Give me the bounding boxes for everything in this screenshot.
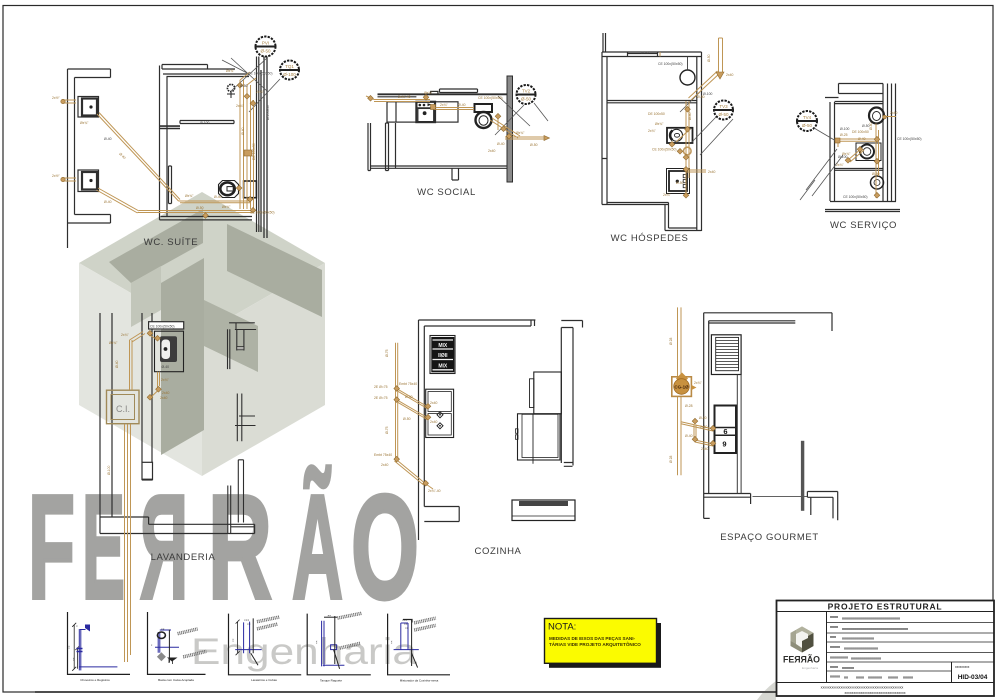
svg-text:Øx¾": Øx¾" — [109, 341, 118, 345]
svg-text:Ø-50: Ø-50 — [676, 181, 684, 185]
svg-text:Ø-50: Ø-50 — [872, 172, 880, 176]
svg-text:Ø-50: Ø-50 — [260, 49, 271, 54]
svg-text:xxxxxxx: xxxxxxx — [868, 676, 882, 680]
svg-text:×: × — [76, 624, 78, 628]
svg-text:Ø-50: Ø-50 — [196, 206, 204, 210]
svg-text:Ø-100: Ø-100 — [200, 121, 210, 125]
svg-text:PVI: PVI — [262, 41, 269, 46]
svg-text:xxxxx: xxxxx — [903, 676, 913, 680]
svg-text:TV3: TV3 — [719, 104, 728, 109]
svg-text:Ø-50: Ø-50 — [240, 84, 248, 88]
svg-text:O: O — [351, 465, 419, 630]
svg-text:Ø-40: Ø-40 — [458, 103, 466, 107]
svg-text:IIØII: IIØII — [438, 353, 448, 359]
svg-text:2x¾"-40: 2x¾"-40 — [428, 489, 441, 493]
svg-text:Я: Я — [140, 465, 188, 630]
svg-text:2x40: 2x40 — [890, 111, 897, 115]
svg-text:CE 100x(50x50): CE 100x(50x50) — [897, 137, 922, 141]
svg-text:××: ×× — [328, 614, 332, 618]
svg-text:2x40: 2x40 — [430, 401, 437, 405]
svg-text:C.I.: C.I. — [116, 404, 130, 414]
svg-text:××: ×× — [72, 657, 76, 661]
svg-text:xxxxxxxxxxxxxxxxxxxxxxxxxxxxx: xxxxxxxxxxxxxxxxxxxxxxxxxxxxx — [842, 617, 900, 621]
svg-text:Ø-50: Ø-50 — [707, 54, 711, 62]
svg-text:Ø-100: Ø-100 — [840, 127, 850, 131]
svg-text:Ø-50: Ø-50 — [718, 112, 729, 117]
svg-text:Ø-50: Ø-50 — [521, 97, 532, 102]
svg-text:Ø-100x50: Ø-100x50 — [266, 105, 270, 120]
svg-text:Engenharia: Engenharia — [802, 666, 818, 670]
svg-text:xxxxxxxxxxxxxxxxxxxxxxxxxxxxxx: xxxxxxxxxxxxxxxxxxxxxxxxxxxxxxxxxx — [844, 691, 905, 695]
svg-text:DE 100x50: DE 100x50 — [852, 130, 869, 134]
svg-text:Ã: Ã — [292, 465, 343, 630]
svg-text:Ø-25: Ø-25 — [840, 133, 848, 137]
svg-text:PROJETO ESTRUTURAL: PROJETO ESTRUTURAL — [828, 602, 943, 612]
svg-text:DE 100x50: DE 100x50 — [252, 143, 256, 160]
svg-text:Ø-50: Ø-50 — [862, 124, 870, 128]
svg-text:xxxxx: xxxxx — [830, 645, 840, 649]
svg-text:Øx¾": Øx¾" — [222, 205, 231, 209]
svg-text:Chuveiros e Registros: Chuveiros e Registros — [80, 678, 110, 682]
svg-text:CG-1Ø: CG-1Ø — [674, 385, 689, 390]
svg-text:TV2: TV2 — [522, 89, 531, 94]
svg-text:LAVANDERIA: LAVANDERIA — [151, 552, 216, 563]
svg-text:xxxxxxxxxxxxxxxxxxxxxxxxxxxxxx: xxxxxxxxxxxxxxxxxxxxxxxxxxxxxxxxx — [842, 627, 908, 631]
svg-text:2x¾": 2x¾" — [236, 104, 244, 108]
svg-text:Ø-50: Ø-50 — [802, 123, 813, 128]
svg-text:Ø-100: Ø-100 — [703, 92, 713, 96]
svg-text:2x¾": 2x¾" — [663, 193, 671, 197]
svg-text:E: E — [82, 465, 125, 630]
svg-text:Engenharia: Engenharia — [191, 631, 418, 672]
svg-text:Ø-75: Ø-75 — [385, 426, 389, 434]
svg-text:Øx¾": Øx¾" — [226, 69, 235, 73]
svg-text:Ø-40: Ø-40 — [104, 200, 112, 204]
svg-text:Ø-40: Ø-40 — [162, 365, 170, 369]
svg-text:DE 100x50: DE 100x50 — [648, 112, 665, 116]
svg-text:Ø-40: Ø-40 — [858, 137, 866, 141]
svg-text:Ø-40: Ø-40 — [699, 416, 707, 420]
svg-text:Ø-40: Ø-40 — [104, 137, 112, 141]
svg-text:××: ×× — [67, 645, 71, 649]
svg-text:Ø-40: Ø-40 — [688, 112, 692, 120]
svg-text:Ø-40: Ø-40 — [641, 51, 649, 55]
svg-text:xxxx: xxxx — [856, 676, 864, 680]
svg-text:NOTA:: NOTA: — [548, 622, 576, 633]
svg-text:Ø 28: Ø 28 — [669, 338, 673, 345]
svg-text:2x40: 2x40 — [381, 463, 388, 467]
svg-text:Ø-28: Ø-28 — [685, 404, 693, 408]
svg-text:2x40: 2x40 — [488, 149, 495, 153]
svg-text:CE 100x(50x50): CE 100x(50x50) — [658, 62, 683, 66]
svg-text:Øx¾": Øx¾" — [516, 131, 525, 135]
svg-text:ESPAÇO GOURMET: ESPAÇO GOURMET — [720, 532, 818, 543]
svg-text:2x¾": 2x¾" — [836, 163, 844, 167]
svg-text:CE 100x(50x50): CE 100x(50x50) — [248, 72, 273, 76]
svg-text:R: R — [208, 465, 272, 630]
svg-text:Embt 75x40: Embt 75x40 — [374, 453, 392, 457]
svg-text:Ø-50: Ø-50 — [405, 395, 413, 399]
svg-text:2x¾": 2x¾" — [694, 381, 702, 385]
svg-text:Ø-40: Ø-40 — [241, 127, 245, 135]
svg-text:xx: xx — [844, 676, 848, 680]
svg-text:FEЯЯÃO: FEЯЯÃO — [783, 655, 820, 665]
svg-text:Ø-75: Ø-75 — [385, 349, 389, 357]
svg-text:×: × — [150, 644, 154, 646]
svg-text:xxxx: xxxx — [830, 625, 838, 629]
svg-text:××: ×× — [315, 640, 319, 644]
svg-text:2E Ø=75: 2E Ø=75 — [374, 396, 388, 400]
svg-text:WC SERVIÇO: WC SERVIÇO — [830, 220, 897, 231]
svg-text:WC SOCIAL: WC SOCIAL — [417, 187, 476, 198]
svg-text:xxxxxxxxxxxxxxx: xxxxxxxxxxxxxxx — [851, 657, 881, 661]
svg-text:Bacia com Caixa Acoplada: Bacia com Caixa Acoplada — [158, 678, 194, 682]
svg-text:Ø-100: Ø-100 — [838, 155, 848, 159]
svg-text:Øx¾": Øx¾" — [655, 122, 664, 126]
svg-text:Øx¾": Øx¾" — [80, 121, 89, 125]
svg-text:xxxxxx: xxxxxx — [842, 666, 854, 670]
svg-text:××: ×× — [247, 622, 251, 626]
svg-text:××: ×× — [161, 627, 165, 631]
svg-text:2x40: 2x40 — [726, 73, 733, 77]
svg-text:Ø-40: Ø-40 — [497, 142, 505, 146]
svg-text:9: 9 — [722, 440, 726, 449]
svg-text:xxxxxxxxx: xxxxxxxxx — [955, 665, 970, 669]
svg-text:xxxxxxxxx: xxxxxxxxx — [830, 656, 848, 660]
svg-text:Ø-100: Ø-100 — [107, 465, 111, 475]
svg-text:Ø-40: Ø-40 — [869, 122, 873, 130]
svg-text:CE 100x(50x50): CE 100x(50x50) — [478, 96, 503, 100]
svg-text:××: ×× — [231, 638, 235, 642]
svg-text:2x¾"-40: 2x¾"-40 — [398, 95, 411, 99]
svg-text:xxx: xxx — [830, 635, 836, 639]
svg-text:Ø 28: Ø 28 — [669, 456, 673, 463]
svg-text:xxxx: xxxx — [830, 615, 838, 619]
svg-text:2x¾": 2x¾" — [121, 333, 129, 337]
svg-text:CE 100x(50x50): CE 100x(50x50) — [652, 148, 677, 152]
svg-text:HID-03/04: HID-03/04 — [958, 674, 988, 681]
svg-text:2x40: 2x40 — [700, 425, 707, 429]
svg-text:2x40: 2x40 — [708, 170, 715, 174]
svg-text:2x¾": 2x¾" — [161, 378, 169, 382]
svg-text:Øx¾": Øx¾" — [185, 194, 194, 198]
svg-text:2x¾": 2x¾" — [648, 129, 656, 133]
svg-text:xxxxxxxxxxxxxxxxxxxxxxxxxxxxxx: xxxxxxxxxxxxxxxxxxxxxxxxxxxxxxxxxxxxxxxx… — [821, 686, 904, 690]
svg-text:Øx¾": Øx¾" — [424, 91, 433, 95]
svg-text:2x¾": 2x¾" — [256, 90, 264, 94]
svg-text:Ø-40: Ø-40 — [685, 434, 693, 438]
svg-text:xxxxx: xxxxx — [888, 676, 898, 680]
svg-text:2x40: 2x40 — [160, 396, 167, 400]
svg-text:Tanque Raquete: Tanque Raquete — [320, 679, 342, 683]
svg-text:F: F — [28, 465, 75, 630]
svg-text:2x40: 2x40 — [162, 391, 169, 395]
svg-text:xxxxxxxxxxxxxxxx: xxxxxxxxxxxxxxxx — [842, 637, 874, 641]
svg-text:Ø-40: Ø-40 — [214, 195, 222, 199]
svg-text:Embt 75x40: Embt 75x40 — [399, 382, 417, 386]
svg-text:CE 100x(50x50): CE 100x(50x50) — [150, 325, 175, 329]
svg-text:Lavatórios e Cubas: Lavatórios e Cubas — [251, 678, 277, 682]
svg-text:TQ1: TQ1 — [285, 64, 294, 69]
svg-text:xxxxxxxxxxxxxxxxx: xxxxxxxxxxxxxxxxx — [844, 647, 878, 651]
svg-text:Ø-100: Ø-100 — [283, 72, 296, 77]
svg-text:Ø-50: Ø-50 — [403, 417, 411, 421]
svg-text:CE 100x(50x50): CE 100x(50x50) — [843, 195, 868, 199]
svg-text:2E Ø=75: 2E Ø=75 — [374, 385, 388, 389]
svg-text:TÁRIAS VIDE PROJETO ARQUITETÔN: TÁRIAS VIDE PROJETO ARQUITETÔNICO — [549, 640, 641, 647]
svg-text:MEDIDAS DE EIXOS DAS PEÇAS SAN: MEDIDAS DE EIXOS DAS PEÇAS SANI- — [549, 636, 635, 641]
svg-text:WC HÓSPEDES: WC HÓSPEDES — [611, 233, 689, 244]
svg-text:××: ×× — [390, 640, 394, 644]
svg-text:MIX: MIX — [438, 363, 448, 369]
svg-text:2x40: 2x40 — [430, 420, 437, 424]
svg-text:xxxx: xxxx — [830, 665, 838, 669]
svg-text:2x½": 2x½" — [52, 96, 60, 100]
svg-text:MIX: MIX — [438, 343, 448, 349]
svg-text:Misturador da Cozinha-mesa: Misturador da Cozinha-mesa — [400, 679, 439, 683]
svg-text:6: 6 — [723, 427, 727, 436]
svg-text:Ø-50: Ø-50 — [530, 143, 538, 147]
svg-text:xxxxx: xxxxx — [830, 675, 840, 679]
svg-text:×: × — [336, 645, 338, 649]
svg-text:COZINHA: COZINHA — [475, 546, 522, 557]
svg-text:Ø-40: Ø-40 — [115, 360, 119, 368]
svg-text:2x40: 2x40 — [701, 447, 708, 451]
svg-text:××: ×× — [405, 626, 409, 630]
svg-text:2x¾": 2x¾" — [440, 103, 448, 107]
svg-text:2x½": 2x½" — [52, 174, 60, 178]
svg-text:CE 100x(50x50): CE 100x(50x50) — [250, 211, 275, 215]
svg-text:TV4: TV4 — [803, 115, 812, 120]
svg-text:WC. SUÍTE: WC. SUÍTE — [144, 237, 198, 248]
